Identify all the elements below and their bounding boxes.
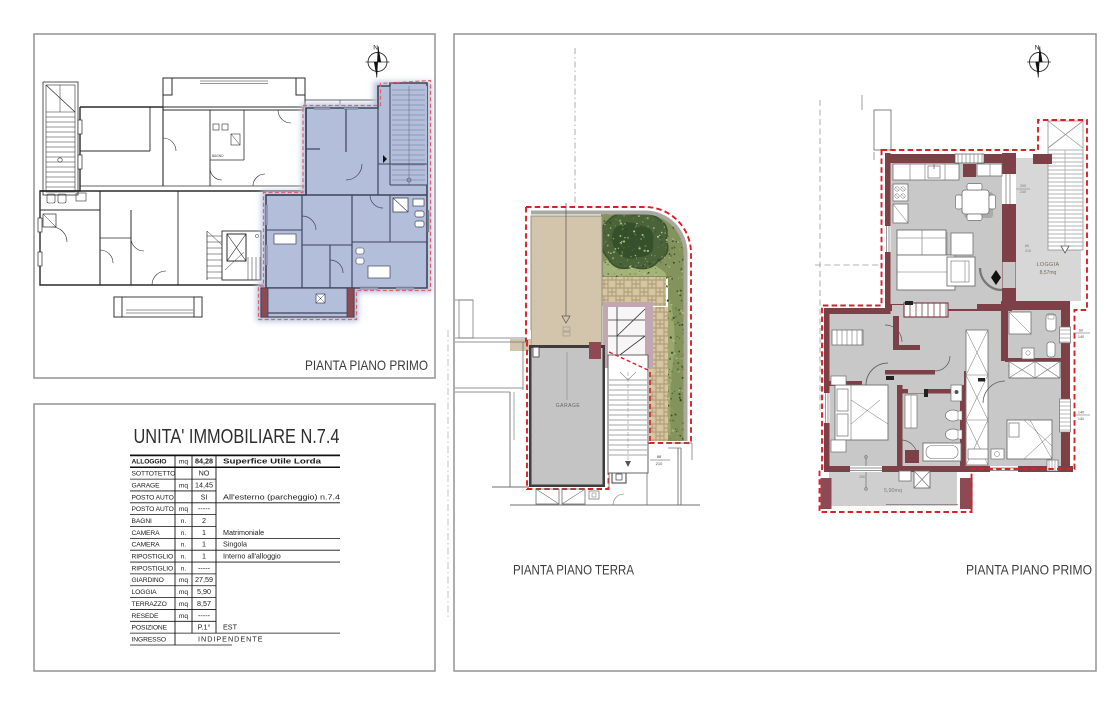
- svg-text:200: 200: [1020, 184, 1026, 188]
- svg-text:CAMERA: CAMERA: [132, 542, 161, 549]
- svg-text:250: 250: [859, 475, 865, 479]
- svg-text:140: 140: [1078, 417, 1084, 421]
- svg-text:8,57: 8,57: [197, 599, 211, 608]
- svg-text:27,59: 27,59: [195, 575, 213, 584]
- svg-text:88: 88: [657, 454, 662, 459]
- svg-text:60: 60: [1079, 329, 1083, 333]
- svg-text:LOGGIA: LOGGIA: [132, 589, 158, 596]
- svg-text:n.: n.: [181, 542, 187, 549]
- svg-text:GARAGE: GARAGE: [132, 482, 161, 489]
- svg-text:-----: -----: [198, 563, 211, 572]
- svg-text:P.1°: P.1°: [198, 623, 211, 632]
- svg-text:BAGNI: BAGNI: [132, 518, 153, 525]
- svg-text:5,90mq: 5,90mq: [884, 488, 902, 494]
- svg-text:RIPOSTIGLIO: RIPOSTIGLIO: [132, 554, 174, 561]
- svg-text:n.: n.: [181, 530, 187, 537]
- svg-text:mq: mq: [179, 459, 188, 466]
- svg-text:CAMERA: CAMERA: [132, 530, 161, 537]
- svg-text:5,90: 5,90: [197, 587, 211, 596]
- svg-text:PIANTA PIANO PRIMO: PIANTA PIANO PRIMO: [305, 357, 428, 373]
- svg-text:n.: n.: [181, 518, 187, 525]
- svg-text:n.: n.: [181, 565, 187, 572]
- svg-text:80: 80: [1025, 244, 1029, 248]
- svg-text:2: 2: [202, 516, 206, 525]
- svg-text:All'esterno (parcheggio) n.7.: All'esterno (parcheggio) n.7.4: [223, 492, 340, 501]
- svg-text:-----: -----: [198, 504, 211, 513]
- svg-text:RIPOSTIGLIO: RIPOSTIGLIO: [132, 565, 174, 572]
- svg-text:BAGNO: BAGNO: [212, 154, 224, 158]
- svg-text:INDIPENDENTE: INDIPENDENTE: [198, 634, 264, 643]
- svg-text:210: 210: [1025, 249, 1031, 253]
- svg-text:8,57mq: 8,57mq: [1040, 270, 1057, 276]
- svg-text:N: N: [1035, 45, 1040, 52]
- svg-text:1: 1: [202, 540, 206, 549]
- svg-text:RESEDE: RESEDE: [132, 613, 160, 620]
- svg-text:INGRESSO: INGRESSO: [132, 636, 167, 643]
- svg-text:POSTO AUTO: POSTO AUTO: [132, 494, 174, 501]
- svg-text:POSIZIONE: POSIZIONE: [132, 625, 168, 632]
- svg-text:ALLOGGIO: ALLOGGIO: [132, 459, 167, 466]
- svg-text:240: 240: [1020, 190, 1026, 194]
- svg-text:1: 1: [202, 528, 206, 537]
- svg-text:EST: EST: [223, 623, 238, 632]
- svg-text:NO: NO: [199, 469, 210, 478]
- svg-text:Matrimoniale: Matrimoniale: [223, 528, 264, 537]
- svg-text:Interno all'alloggio: Interno all'alloggio: [223, 552, 281, 561]
- svg-text:UNITA' IMMOBILIARE N.7.4: UNITA' IMMOBILIARE N.7.4: [134, 425, 340, 448]
- svg-text:mq: mq: [179, 589, 188, 596]
- svg-text:n.: n.: [181, 554, 187, 561]
- svg-text:1: 1: [202, 552, 206, 561]
- svg-text:POSTO AUTO: POSTO AUTO: [132, 506, 174, 513]
- svg-text:mq: mq: [179, 601, 188, 608]
- svg-text:GIARDINO: GIARDINO: [132, 577, 164, 584]
- svg-text:mq: mq: [179, 482, 188, 489]
- svg-text:N: N: [373, 45, 378, 52]
- svg-text:mq: mq: [179, 577, 188, 584]
- svg-text:PIANTA PIANO PRIMO: PIANTA PIANO PRIMO: [966, 562, 1092, 578]
- svg-text:210: 210: [656, 461, 663, 466]
- svg-text:PIANTA PIANO TERRA: PIANTA PIANO TERRA: [513, 562, 635, 578]
- svg-text:14,45: 14,45: [195, 480, 213, 489]
- svg-text:TERRAZZO: TERRAZZO: [132, 601, 167, 608]
- svg-text:Singola: Singola: [223, 540, 247, 549]
- svg-text:LOGGIA: LOGGIA: [1036, 262, 1059, 268]
- svg-text:GARAGE: GARAGE: [556, 403, 581, 409]
- svg-text:SI: SI: [201, 492, 208, 501]
- svg-text:140: 140: [1078, 411, 1084, 415]
- svg-text:84,28: 84,28: [195, 457, 213, 466]
- svg-text:mq: mq: [179, 506, 188, 513]
- svg-text:Superfice Utile Lorda: Superfice Utile Lorda: [223, 457, 322, 466]
- svg-text:140: 140: [1078, 335, 1084, 339]
- svg-text:mq: mq: [179, 613, 188, 620]
- svg-text:-----: -----: [198, 611, 211, 620]
- svg-text:SOTTOTETTO: SOTTOTETTO: [132, 471, 176, 478]
